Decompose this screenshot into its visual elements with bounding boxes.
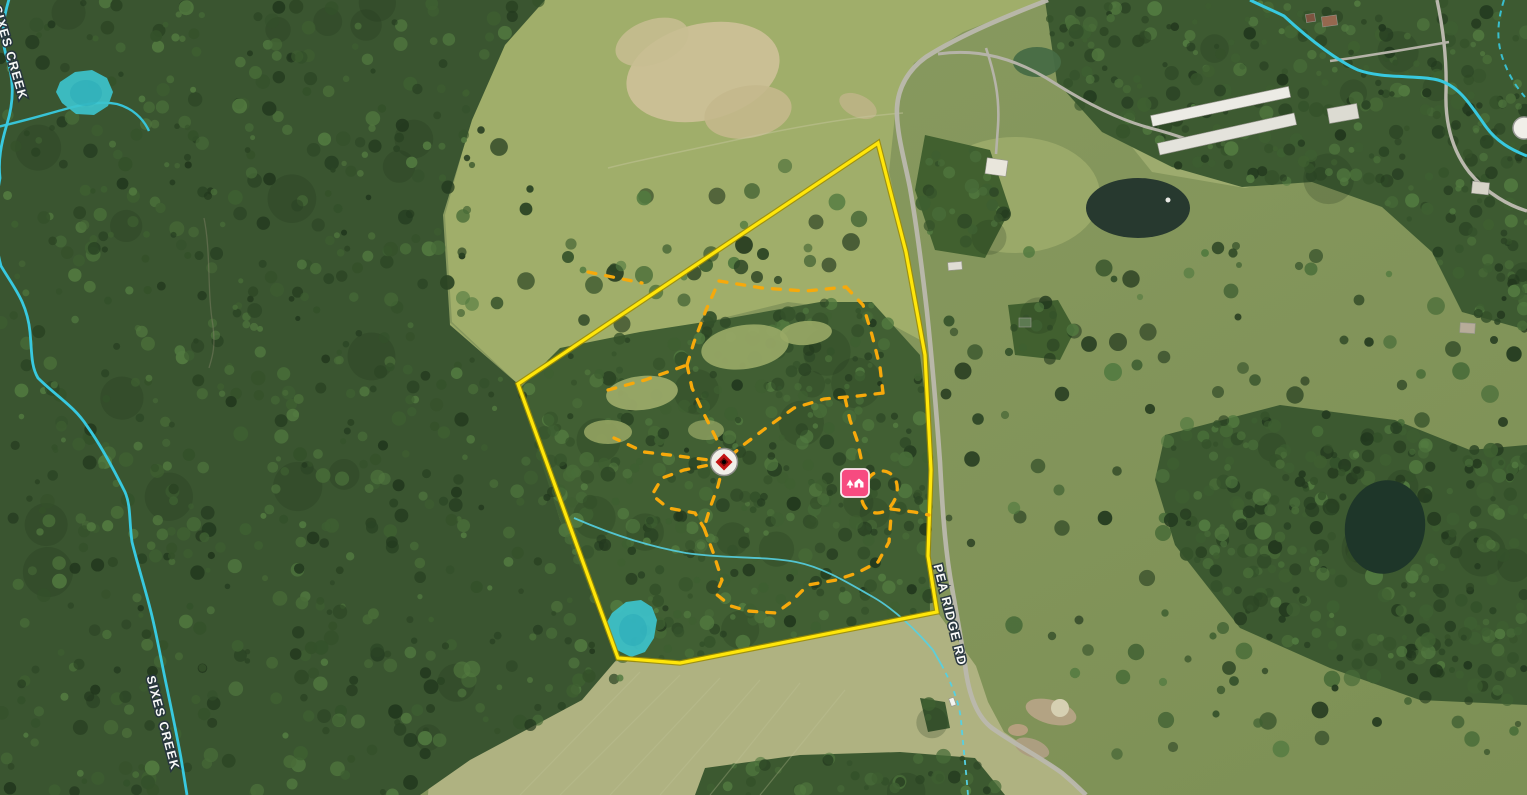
trail-hub-marker[interactable] xyxy=(711,449,738,476)
red-shed-1 xyxy=(1321,15,1337,27)
house-east xyxy=(1460,323,1476,334)
roadside-shed xyxy=(948,261,963,270)
cabin-marker[interactable] xyxy=(841,469,869,497)
pond-dock-dot xyxy=(1166,198,1171,203)
green-shed xyxy=(1019,318,1031,327)
aerial-map-canvas[interactable]: PEA RIDGE RD SIXES CREEK SIXES CREEK xyxy=(0,0,1527,795)
base-imagery xyxy=(0,0,1527,795)
red-shed-2 xyxy=(1305,13,1315,22)
map-svg: PEA RIDGE RD SIXES CREEK SIXES CREEK xyxy=(0,0,1527,795)
farm-house xyxy=(985,158,1008,177)
house-northeast xyxy=(1471,181,1489,195)
farm-pond xyxy=(1086,178,1190,238)
